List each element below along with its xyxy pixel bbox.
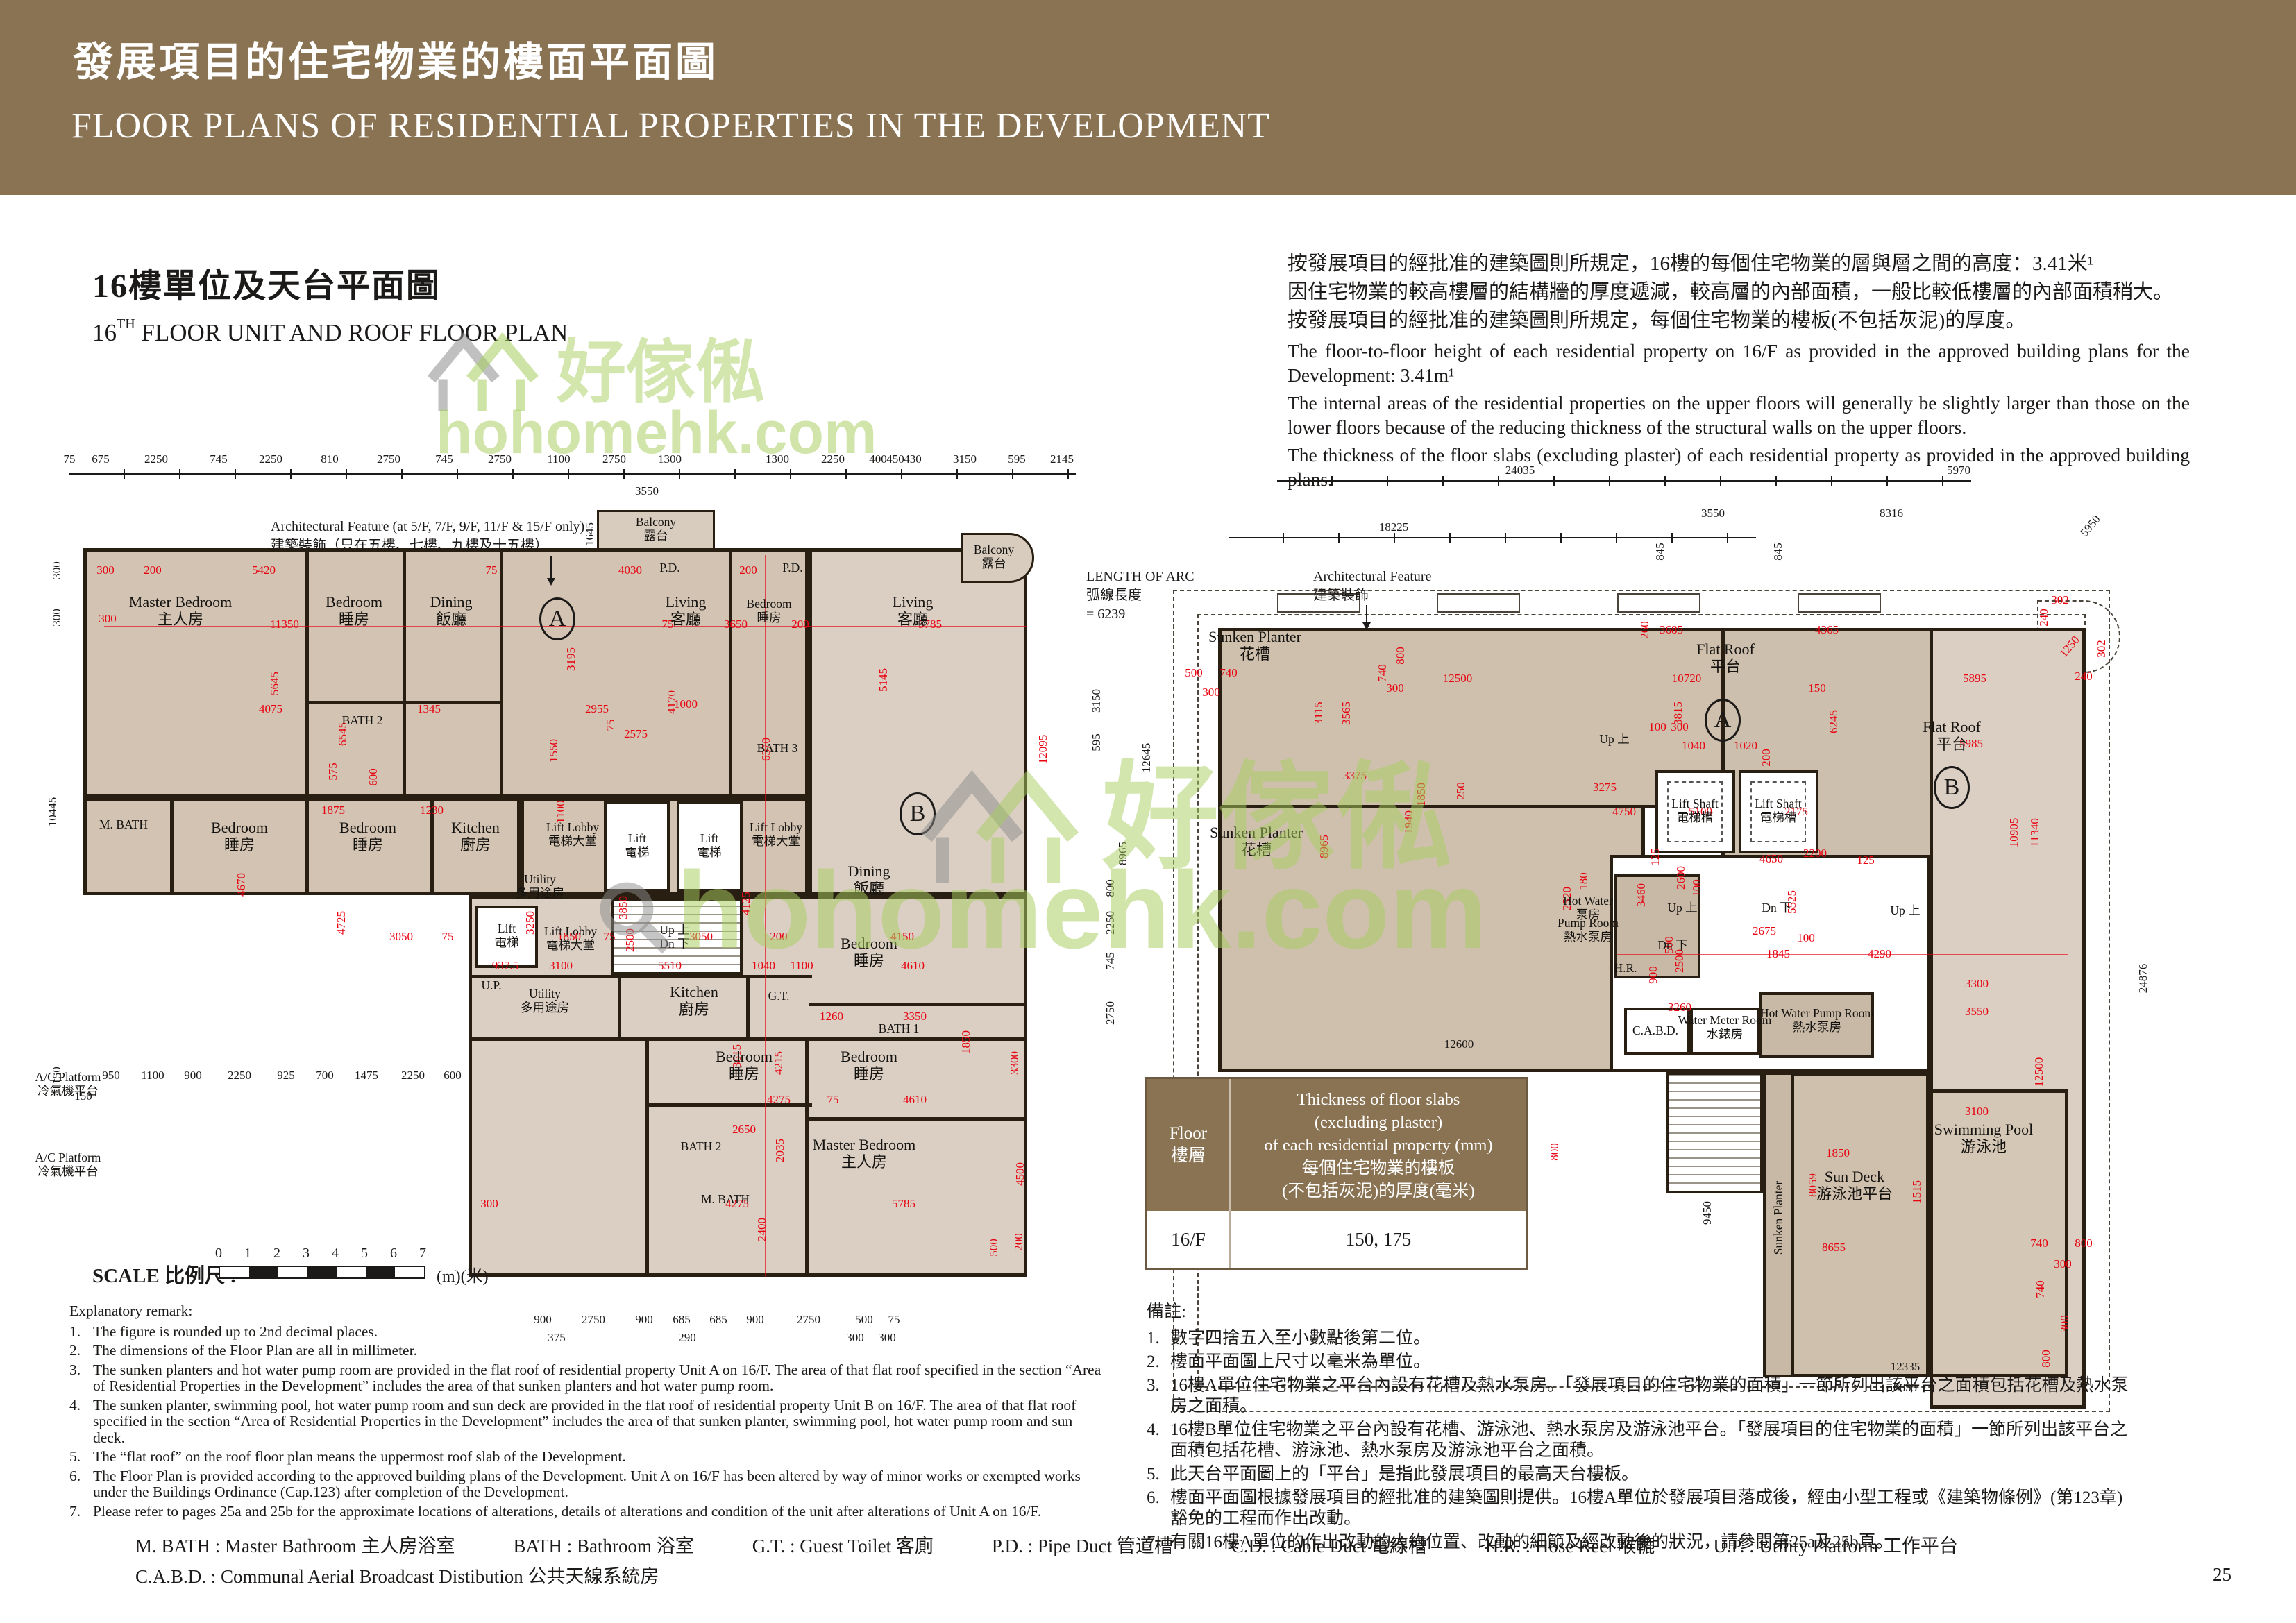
room-label-en: Sunken Planter [1771,1181,1785,1255]
room-label-en: Lift [700,831,718,845]
dimension-label: 3685 [1660,623,1683,637]
wall [729,548,732,798]
dimension-label: 3260 [1668,1001,1691,1014]
room-label-en: Hot Water Pump Room [1760,1006,1874,1020]
dimension-label: 11350 [270,618,299,631]
room-label-en: Sunken Planter [1208,628,1301,645]
remark-text: The dimensions of the Floor Plan are all… [93,1343,1107,1359]
dimension-label: 900 [635,1313,653,1327]
scale-tick: 5 [361,1246,368,1261]
callout-zh: 建築裝飾（只在五樓、七樓、九樓及十五樓） [271,536,584,555]
room-label-zh: 熱水泵房 [1564,930,1612,944]
room-label-en: Utility [529,987,561,1001]
room-label: Up 上Dn 下 [659,923,689,951]
room-label-en: Flat Roof [1923,718,1981,736]
dimension-label: 4365 [1815,623,1839,637]
room-label: Sunken Planter花槽 [1210,824,1303,858]
wall [809,1003,1027,1006]
wall [618,975,621,1041]
dimension-label: 2250 [259,452,282,466]
dimension-label: 675 [92,452,110,466]
dimension-label: 1850 [1826,1146,1850,1160]
dimension-chain-line [1277,480,1971,482]
dimension-label: 12645 [1140,743,1154,773]
room-label: Kitchen廚房 [451,819,500,853]
remarks-zh: 備註: 1.數字四捨五入至小數點後第二位。2.樓面平面圖上尺寸以毫米為單位。3.… [1147,1302,2141,1556]
dimension-label: 240 [2037,609,2051,627]
room-label-zh: 電梯大堂 [546,938,595,952]
dimension-label: 200 [770,930,788,944]
dimension-label: 745 [210,452,228,466]
room-label-en: M. BATH [99,817,148,831]
dimension-label: 2750 [1104,1001,1117,1025]
dimension-label: 745 [1104,952,1117,970]
remark-number: 4. [1147,1420,1170,1461]
dimension-label: 4610 [903,1093,927,1107]
dimension-label: 1040 [752,959,775,973]
room-label-en: Lift Lobby [544,924,597,938]
room-label-zh: 水錶房 [1707,1027,1744,1041]
floor-number: 16 [92,319,117,346]
room-label-zh: 飯廳 [854,880,884,897]
table-header-floor: Floor 樓層 [1147,1079,1231,1211]
watermark-zh: 好傢俬 [557,334,765,411]
room-label-zh: 熱水泵房 [1793,1020,1841,1034]
architectural-feature [1617,593,1700,613]
dimension-label: 2250 [1104,911,1117,935]
room-label-en: Lift [628,831,646,845]
room-label-zh: 睡房 [353,836,383,853]
wall [403,548,406,798]
room-label: BATH 3 [757,741,798,755]
dimension-label: 3550 [1701,507,1725,520]
dimension-label: 1940 [1402,810,1416,834]
remarks-items: 1.The figure is rounded up to 2nd decima… [69,1324,1107,1520]
remark-number: 6. [1147,1488,1170,1529]
dimension-label: 10445 [46,797,60,827]
dimension-label: 2250 [228,1069,251,1082]
room-label-en: Bedroom [841,935,897,952]
dimension-label: 8655 [1893,1381,1917,1395]
dimension-label: 1100 [547,452,570,466]
dimension-label: 18225 [1379,520,1409,534]
room-label-en: Dining [847,863,890,880]
wall [170,798,174,895]
room-label: M. BATH [701,1192,750,1206]
wall [305,701,503,704]
room-label-en: H.R. [1614,961,1637,975]
callout-en: Architectural Feature (at 5/F, 7/F, 9/F,… [271,518,584,536]
room-label-en: Up 上 [1599,732,1629,746]
intro-zh: 按發展項目的經批准的建築圖則所規定，16樓的每個住宅物業的層與層之間的高度：3.… [1288,250,2190,335]
wall [305,798,309,895]
dimension-label: 300 [480,1197,498,1211]
room-label: P.D. [782,561,802,575]
dimension-label: 8316 [1880,507,1903,520]
wall [805,1037,809,1277]
dimension-label: 2400 [755,1218,769,1241]
dimension-label: 300 [50,609,64,627]
scale-tick: 0 [215,1246,222,1261]
section-title-zh: 16樓單位及天台平面圖 [92,258,568,307]
room-label: Lift電梯 [495,921,519,949]
dimension-label: 3115 [1312,702,1326,724]
dimension-label: 2955 [585,702,609,716]
dimension-label: 5145 [877,668,890,692]
room-label-zh: 電梯大堂 [752,834,800,848]
dimension-label: 300 [878,1331,896,1345]
room-label: Up 上 [1890,903,1920,917]
legend-item: U.P. : Utility Platform 工作平台 [1713,1531,1958,1558]
room-label-zh: 睡房 [854,1065,884,1082]
room-label-zh: Dn 下 [659,937,689,951]
dimension-label: 700 [316,1069,334,1082]
dimension-label: 3300 [1008,1051,1022,1075]
dimension-line [273,555,273,895]
remark-text: 樓面平面圖根據發展項目的經批准的建築圖則提供。16樓A單位於發展項目落成後，經由… [1170,1488,2141,1529]
legend-item: BATH : Bathroom 浴室 [513,1531,693,1558]
dimension-label: 430 [904,452,922,466]
architectural-feature-callout: Architectural Feature (at 5/F, 7/F, 9/F,… [271,518,584,555]
arc-note-line: = 6239 [1086,605,1195,624]
room-label-en: BATH 3 [757,741,798,755]
room-label: Flat Roof平台 [1923,718,1981,753]
room-label: Bedroom睡房 [841,1048,897,1082]
dimension-label: 4500 [1013,1162,1027,1186]
wall [500,548,503,798]
room-label-en: U.P. [481,978,501,992]
dimension-label: 300 [846,1331,864,1345]
dimension-label: 3050 [389,930,413,944]
intro-line-zh: 按發展項目的經批准的建築圖則所規定，16樓的每個住宅物業的層與層之間的高度：3.… [1288,250,2190,278]
room-label-en: Up 上 [1890,903,1920,917]
table-header-thickness: Thickness of floor slabs(excluding plast… [1231,1079,1526,1211]
dimension-label: 100 [1797,931,1815,945]
room-label-zh: 露台 [643,529,668,543]
room-label-zh: 平台 [1710,658,1741,675]
room-label-en: Lift [498,921,516,935]
dimension-label: 1550 [547,739,561,763]
callout-en: Architectural Feature [1313,568,1431,586]
room-label-zh: 露台 [981,556,1006,570]
section-title-en: 16TH FLOOR UNIT AND ROOF FLOOR PLAN [92,316,568,347]
room-label: M. BATH [99,817,148,831]
room-label-zh: 電梯大堂 [548,834,597,848]
dimension-label: 845 [1653,543,1667,561]
remark-item: 4.16樓B單位住宅物業之平台內設有花槽、游泳池、熱水泵房及游泳池平台。「發展項… [1147,1420,2141,1461]
remark-item: 2.樓面平面圖上尺寸以毫米為單位。 [1147,1352,2141,1373]
wall [746,975,750,1041]
table-header: Floor 樓層 Thickness of floor slabs(exclud… [1147,1079,1526,1211]
dimension-label: 450 [886,452,904,466]
room-label: Balcony露台 [974,543,1014,570]
dimension-label: 900 [746,1313,764,1327]
architectural-feature [1798,593,1881,613]
room-label-zh: 花槽 [1241,841,1272,858]
dimension-label: 12500 [1443,672,1473,686]
room-label-zh: 廚房 [679,1001,709,1018]
arc-note-line: 弧線長度 [1086,586,1195,605]
scale-cell [278,1267,307,1277]
table-header-line: Thickness of floor slabs [1297,1088,1460,1111]
dimension-label: 2750 [602,452,626,466]
dimension-label: 2500 [1673,949,1687,973]
scale-tick: 1 [244,1246,251,1261]
dimension-label: 595 [1008,452,1026,466]
dimension-label: 2575 [624,727,648,741]
remark-item: 2.The dimensions of the Floor Plan are a… [69,1343,1107,1359]
room-label: Sun Deck游泳池平台 [1816,1168,1893,1203]
dimension-label: 200 [1012,1233,1026,1251]
dimension-label: 1850 [1415,783,1428,806]
dimension-label: 3460 [1635,883,1648,907]
dimension-label: 810 [321,452,339,466]
remark-text: The sunken planters and hot water pump r… [93,1362,1107,1395]
dimension-label: 575 [326,763,340,781]
dimension-label: 2250 [144,452,168,466]
room-label: BATH 2 [681,1139,722,1153]
dimension-label: 6245 [1827,710,1841,733]
remark-text: 樓面平面圖上尺寸以毫米為單位。 [1170,1352,2141,1373]
dimension-label: 290 [678,1331,696,1345]
room-label-en: Water Meter Room [1678,1013,1772,1027]
dimension-label: 1100 [141,1069,164,1082]
dimension-label: 800 [2039,1350,2053,1368]
floor-slab-table: Floor 樓層 Thickness of floor slabs(exclud… [1145,1077,1528,1270]
explanatory-remarks: Explanatory remark: 1.The figure is roun… [69,1303,1107,1522]
room-label: P.D. [659,561,679,575]
room-label-en: BATH 1 [879,1021,920,1035]
remark-item: 3.16樓A單位住宅物業之平台內設有花槽及熱水泵房。「發展項目的住宅物業的面積」… [1147,1375,2141,1417]
intro-line-zh: 按發展項目的經批准的建築圖則所規定，每個住宅物業的樓板(不包括灰泥)的厚度。 [1288,307,2190,335]
dimension-label: 685 [709,1313,727,1327]
remark-number: 2. [1147,1352,1170,1373]
dimension-label: 75 [486,563,498,577]
header-banner: 發展項目的住宅物業的樓面平面圖 FLOOR PLANS OF RESIDENTI… [0,0,2296,195]
legend-item: M. BATH : Master Bathroom 主人房浴室 [135,1531,455,1558]
dimension-chain-line [1229,537,1756,538]
room-label-en: Lift Lobby [546,820,599,834]
page-number: 25 [2213,1564,2231,1586]
dimension-label: 200 [791,618,809,631]
dimension-label: 740 [1219,666,1238,680]
remark-item: 5.此天台平面圖上的「平台」是指此發展項目的最高天台樓板。 [1147,1464,2141,1485]
dimension-label: 9450 [1700,1201,1714,1225]
room-label-en: Swimming Pool [1934,1121,2033,1138]
unit-a-fill [83,548,809,798]
remark-number: 7. [69,1504,93,1520]
dimension-label: 845 [1771,543,1785,561]
dimension-label: 5895 [1963,672,1986,686]
arc-note-line: LENGTH OF ARC [1086,568,1195,586]
room-label: Up 上 [1667,901,1697,915]
callout-arrow [1366,605,1367,627]
room-label: Lift Shaft電梯槽 [1755,797,1802,824]
dimension-label: 800 [2075,1237,2093,1250]
room-label-zh: 電梯 [625,845,650,859]
dimension-label: 375 [548,1331,566,1345]
room-label-en: Dining [430,593,472,611]
dimension-label: 740 [2030,1237,2048,1250]
remark-number: 1. [69,1324,93,1341]
wall [305,548,309,798]
room-label: Bedroom睡房 [339,819,396,853]
scale-bar-graphic [219,1266,425,1279]
dimension-label: 1875 [321,804,345,817]
room-label-zh: 多用途房 [516,886,564,900]
room-label-en: Bedroom [716,1048,773,1065]
scale-cell [249,1267,278,1277]
dimension-label: 3850 [616,896,630,919]
room-label: C.A.B.D. [1632,1023,1678,1037]
dimension-label: 2650 [732,1123,756,1137]
room-label: Hot Water Pump Room熱水泵房 [1760,1006,1874,1034]
room-label-en: P.D. [659,561,679,575]
dimension-label: 300 [96,563,115,577]
dimension-label: 4750 [1612,805,1636,819]
room-label: Bedroom睡房 [716,1048,773,1082]
room-label-zh: 廚房 [460,836,491,853]
dimension-label: 11340 [2028,818,2042,847]
table-header-line: (不包括灰泥)的厚度(毫米) [1282,1180,1475,1203]
remark-item: 3.The sunken planters and hot water pump… [69,1362,1107,1395]
dimension-label: 900 [1646,966,1660,984]
dimension-label: 5510 [658,959,682,973]
ordinal-sup: TH [117,316,135,332]
room-label-en: Dn 下 [1762,901,1791,915]
scale-tick: 4 [332,1246,339,1261]
roof-floor-plan: LENGTH OF ARC弧線長度= 6239 Architectural Fe… [1069,444,2157,1416]
room-label-zh: 睡房 [729,1065,759,1082]
room-label-en: Up 上 [659,923,689,937]
room-label-zh: 花槽 [1240,645,1270,663]
remark-text: 此天台平面圖上的「平台」是指此發展項目的最高天台樓板。 [1170,1464,2141,1485]
arc-note-lines: LENGTH OF ARC弧線長度= 6239 [1086,568,1195,624]
dimension-label: 3300 [1965,977,1989,991]
dimension-label: 2500 [623,928,637,952]
room-label-en: Pump Room [1558,916,1619,930]
dimension-label: 75 [604,720,618,731]
dimension-label: 1345 [417,702,441,716]
dimension-label: 12500 [2032,1057,2046,1087]
dimension-label: 1230 [420,804,444,817]
remark-item: 6.樓面平面圖根據發展項目的經批准的建築圖則提供。16樓A單位於發展項目落成後，… [1147,1488,2141,1529]
dimension-label: 4650 [1759,852,1783,866]
dimension-label: 1845 [1766,947,1790,961]
dimension-label: 4610 [901,959,925,973]
dimension-label: 950 [102,1069,120,1082]
room-label: Bedroom睡房 [326,593,382,628]
dimension-label: 240 [2075,670,2093,683]
dimension-label: 250 [1454,782,1468,800]
dimension-label: 8965 [1116,842,1130,865]
scale-tick: 6 [390,1246,397,1261]
room-label: Swimming Pool游泳池 [1934,1121,2033,1155]
room-label: Dn 下 [1657,938,1687,952]
room-label-zh: 游泳池平台 [1816,1185,1893,1203]
table-header-line: 每個住宅物業的樓板 [1302,1157,1455,1180]
room-label-en: Bedroom [841,1048,897,1065]
dimension-label: 1515 [1910,1180,1924,1204]
room-label-en: Master Bedroom [813,1136,915,1153]
room-label-zh: 睡房 [339,611,369,628]
room-label-en: Balcony [636,515,676,529]
scale-tick: 2 [273,1246,280,1261]
dimension-label: 800 [1548,1143,1562,1161]
unit-mark-b: B [900,792,936,835]
room-label: BATH 1 [879,1021,920,1035]
room-label: Lift電梯 [698,831,722,859]
dimension-label: 3100 [549,959,573,973]
room-label-zh: 主人房 [841,1153,887,1171]
dimension-line [765,555,766,1277]
scale-cell [395,1267,424,1277]
section-title: 16樓單位及天台平面圖 16TH FLOOR UNIT AND ROOF FLO… [92,258,568,347]
dimension-label: 500 [1185,666,1203,680]
floor-plan-16f: Architectural Feature (at 5/F, 7/F, 9/F,… [42,451,1083,1353]
intro-line-en: The floor-to-floor height of each reside… [1288,339,2190,387]
dimension-label: 24035 [1505,464,1535,477]
page-title-en: FLOOR PLANS OF RESIDENTIAL PROPERTIES IN… [71,105,1270,146]
dimension-label: 900 [534,1313,552,1327]
dimension-label: 4275 [767,1093,791,1107]
dimension-label: 260 [1638,621,1652,639]
dimension-label: 1300 [658,452,682,466]
room-label: A/C Platform冷氣機平台 [35,1150,101,1178]
remark-text: 16樓A單位住宅物業之平台內設有花槽及熱水泵房。「發展項目的住宅物業的面積」一節… [1170,1375,2141,1417]
room-label-zh: 客廳 [670,611,701,628]
scale-tick: 7 [419,1246,426,1261]
abbreviation-legend-line2: C.A.B.D. : Communal Aerial Broadcast Dis… [135,1561,659,1588]
remark-number: 5. [69,1449,93,1465]
scale-cell [337,1267,366,1277]
remark-number: 4. [69,1397,93,1447]
room-label-en: Bedroom [746,597,791,611]
dimension-label: 302 [2095,640,2109,658]
room-label-en: BATH 2 [342,713,383,727]
dimension-label: 2750 [488,452,512,466]
room-label: Lift Lobby電梯大堂 [546,820,599,848]
dimension-label: 1020 [1734,739,1757,753]
room-label: Master Bedroom主人房 [813,1136,915,1171]
dimension-label: 3650 [724,618,748,631]
room-label: Lift Shaft電梯槽 [1671,797,1719,824]
dimension-label: 180 [1577,872,1591,890]
room-label-en: Dn 下 [1657,938,1687,952]
room-label-en: M. BATH [701,1192,750,1206]
room-label-zh: 電梯 [698,845,722,859]
cell-floor: 16/F [1147,1211,1231,1268]
room-label-zh: 游泳池 [1961,1138,2007,1155]
room-label-en: Living [666,593,707,611]
dimension-label: 5785 [892,1197,915,1211]
room-label: Dn 下 [1762,901,1791,915]
room-label: Master Bedroom主人房 [129,593,232,628]
dimension-label: 200 [1759,749,1773,767]
callout-arrow [550,556,552,583]
dimension-label: 4030 [618,563,642,577]
dimension-label: 2035 [773,1139,787,1162]
scale-cell [220,1267,249,1277]
room-label: Utility多用途房 [516,872,564,900]
dimension-label: 500 [855,1313,873,1327]
remarks-items: 1.數字四捨五入至小數點後第二位。2.樓面平面圖上尺寸以毫米為單位。3.16樓A… [1147,1328,2141,1553]
dimension-label: 500 [987,1239,1001,1257]
dimension-label: 600 [444,1069,462,1082]
dimension-label: 3150 [1090,689,1104,713]
dimension-label: 4125 [739,892,753,915]
room-label-zh: 電梯 [495,935,519,949]
